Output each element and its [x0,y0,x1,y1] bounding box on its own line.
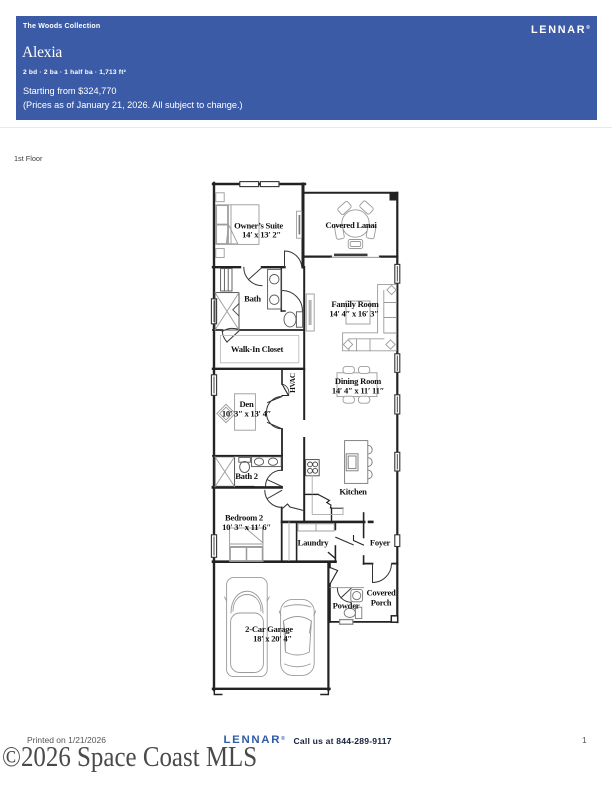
svg-text:Bath 2: Bath 2 [235,471,258,481]
svg-text:18′ x 20′ 4″: 18′ x 20′ 4″ [253,634,292,644]
svg-text:10′ 3″ x 11′ 6″: 10′ 3″ x 11′ 6″ [222,522,271,532]
svg-text:Powder: Powder [333,601,360,611]
svg-text:Porch: Porch [371,598,392,608]
svg-text:14′ 4″ x 16′ 3″: 14′ 4″ x 16′ 3″ [329,309,378,319]
svg-text:Dining Room: Dining Room [335,376,382,386]
svg-text:Covered: Covered [366,588,396,598]
svg-text:Bedroom 2: Bedroom 2 [225,513,263,523]
svg-text:Laundry: Laundry [298,538,330,548]
svg-text:Foyer: Foyer [370,538,391,548]
svg-text:2-Car Garage: 2-Car Garage [245,624,293,634]
svg-text:14′ x 13′ 2″: 14′ x 13′ 2″ [242,230,281,240]
svg-text:Bath: Bath [244,294,261,304]
svg-text:Covered Lanai: Covered Lanai [325,220,377,230]
svg-text:Walk-In Closet: Walk-In Closet [231,344,284,354]
svg-text:HVAC: HVAC [288,373,297,393]
svg-text:14′ 4″ x 11′ 11″: 14′ 4″ x 11′ 11″ [332,386,384,396]
svg-text:10′ 3″ x 13′ 4″: 10′ 3″ x 13′ 4″ [222,409,271,419]
svg-text:Family Room: Family Room [331,299,379,309]
svg-text:Den: Den [239,399,254,409]
svg-text:Kitchen: Kitchen [339,487,367,497]
